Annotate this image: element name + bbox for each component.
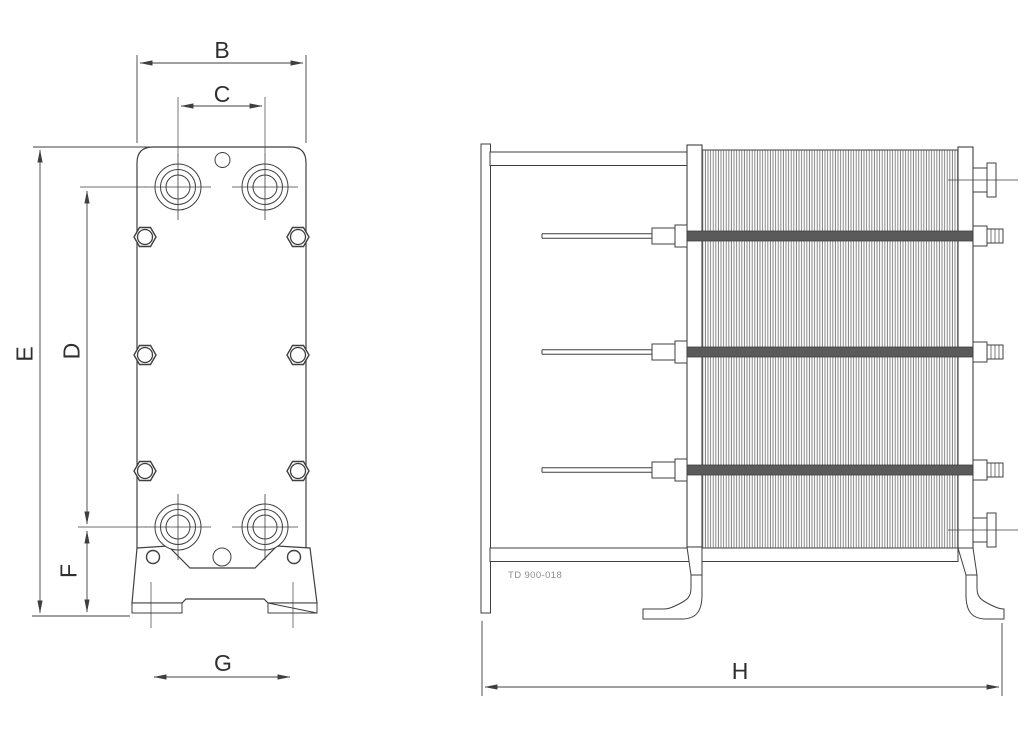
dimension-e	[32, 147, 150, 616]
guide-bar	[490, 548, 958, 562]
support-column	[481, 144, 491, 613]
dimension-label-f: F	[58, 564, 81, 578]
dimension-label-e: E	[14, 346, 37, 361]
carrying-hole-bottom	[213, 548, 231, 566]
dimension-label-b: B	[214, 39, 229, 62]
front-view-drawing	[32, 55, 317, 677]
dimension-label-h: H	[732, 660, 749, 683]
port-top-right	[232, 154, 298, 220]
base-bracket	[132, 546, 317, 613]
drawing-linework	[0, 0, 1024, 747]
carrying-bar	[490, 152, 687, 166]
dimension-label-g: G	[214, 652, 232, 675]
carrying-hole-top	[215, 153, 230, 168]
side-view-drawing	[481, 144, 1018, 696]
pressure-plate-foot	[958, 548, 1004, 619]
dimension-label-d: D	[61, 343, 84, 360]
drawing-number-label: TD 900-018	[508, 570, 562, 581]
fixed-frame-plate	[687, 145, 702, 547]
dimension-label-c: C	[214, 83, 231, 106]
heat-exchanger-dimension-drawing: B C E D F G H TD 900-018	[0, 0, 1024, 747]
frame-plate-outline	[137, 147, 306, 548]
port-top-left	[145, 154, 211, 220]
